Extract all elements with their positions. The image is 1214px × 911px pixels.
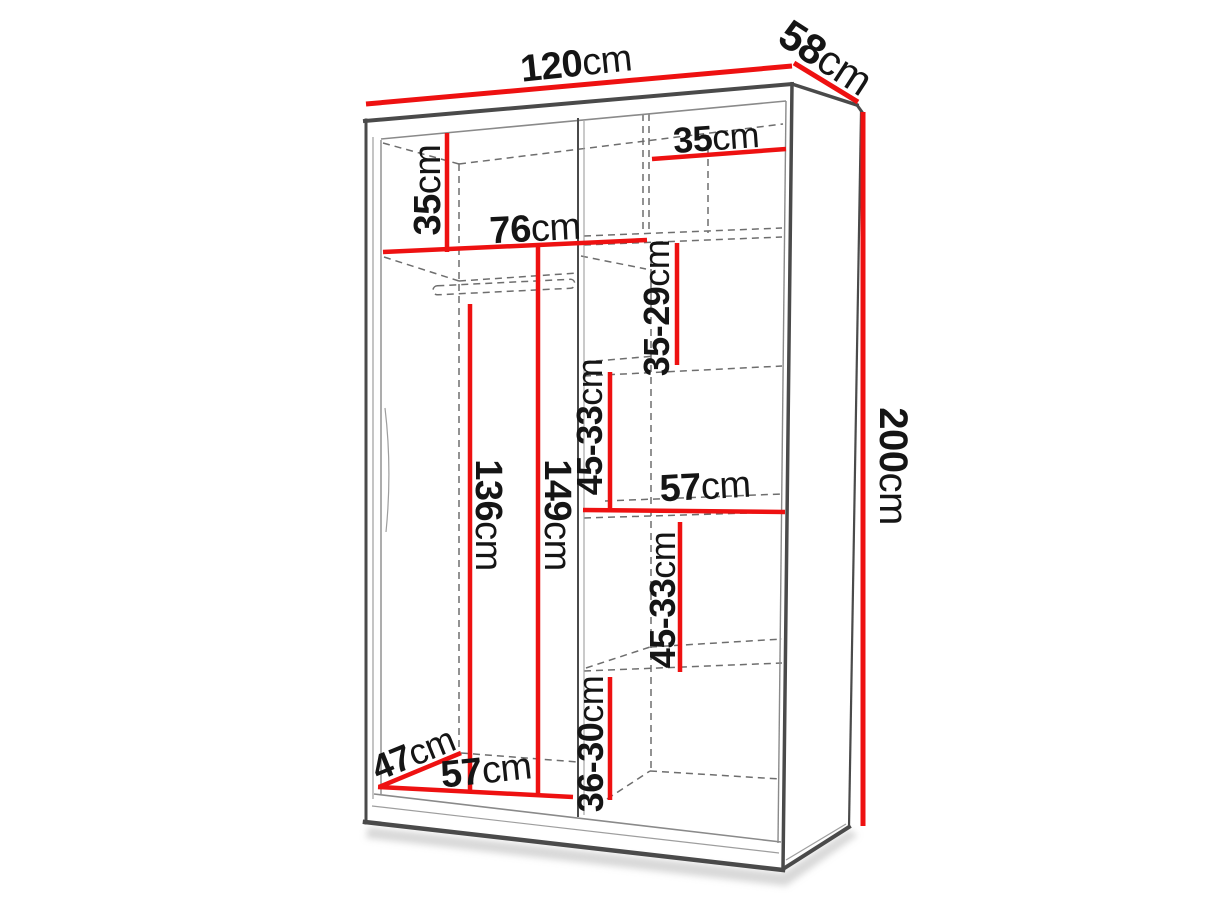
shelf1-top-edge (584, 228, 782, 236)
dimension-labels: 120cm 58cm 35cm 35cm 76cm 35-29cm 45-33c… (366, 10, 915, 812)
wardrobe-dimension-diagram: 120cm 58cm 35cm 35cm 76cm 35-29cm 45-33c… (0, 0, 1214, 911)
right-floor-diagonal (607, 771, 650, 799)
shelf2-front-edge (584, 366, 782, 376)
dim-label-hanging-space-height: 136cm (467, 459, 509, 571)
dim-label-overall-height: 200cm (871, 407, 915, 525)
hanging-rail (433, 279, 575, 295)
dim-label-upper-shelf-spacing-right: 35-29cm (636, 240, 677, 377)
dim-label-top-shelf-height-left: 35cm (407, 145, 449, 236)
dim-label-overall-depth: 58cm (771, 10, 881, 104)
dim-label-left-section-bottom-width: 57cm (439, 745, 534, 796)
dim-label-top-shelf-width-right: 35cm (672, 114, 761, 161)
door-highlight (385, 408, 389, 532)
dim-label-left-interior-height: 149cm (536, 459, 578, 571)
shelf4-diagonal (586, 647, 650, 668)
shelf4-front-edge (584, 663, 782, 671)
dim-label-mid-lower-shelf-spacing-right: 45-33cm (642, 532, 683, 669)
left-shelf-diagonal (384, 257, 459, 281)
dim-line-right-shelf-width (583, 510, 785, 512)
dim-label-right-shelf-width: 57cm (659, 464, 752, 511)
side-back-edge (849, 112, 861, 827)
dim-label-left-section-width: 76cm (489, 206, 582, 253)
dim-label-bottom-shelf-spacing-right: 36-30cm (570, 676, 611, 813)
right-floor-back-edge (650, 771, 780, 779)
